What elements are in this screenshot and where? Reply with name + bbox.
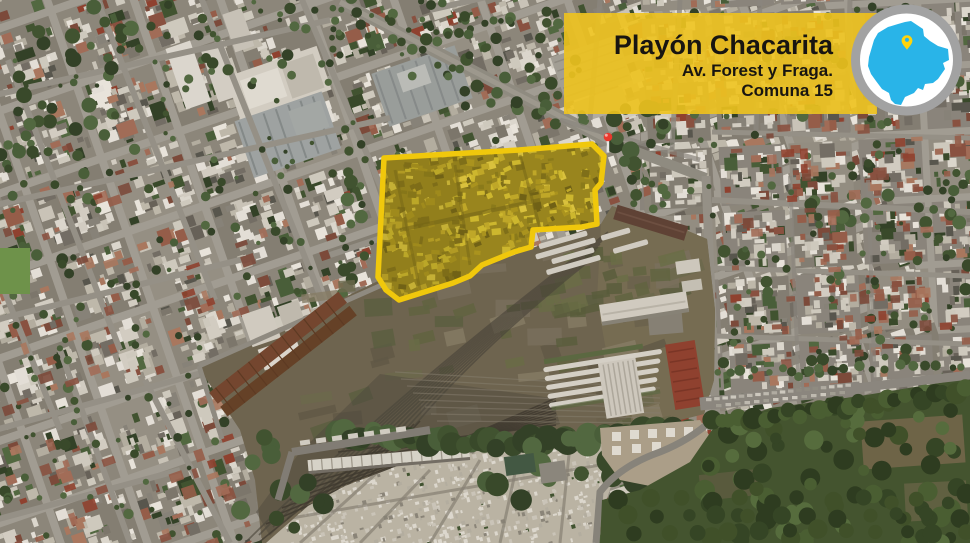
svg-text:Playón Chacarita: Playón Chacarita [614, 30, 834, 60]
svg-text:Av. Forest y Fraga.: Av. Forest y Fraga. [682, 61, 833, 80]
svg-text:Comuna 15: Comuna 15 [741, 81, 833, 100]
